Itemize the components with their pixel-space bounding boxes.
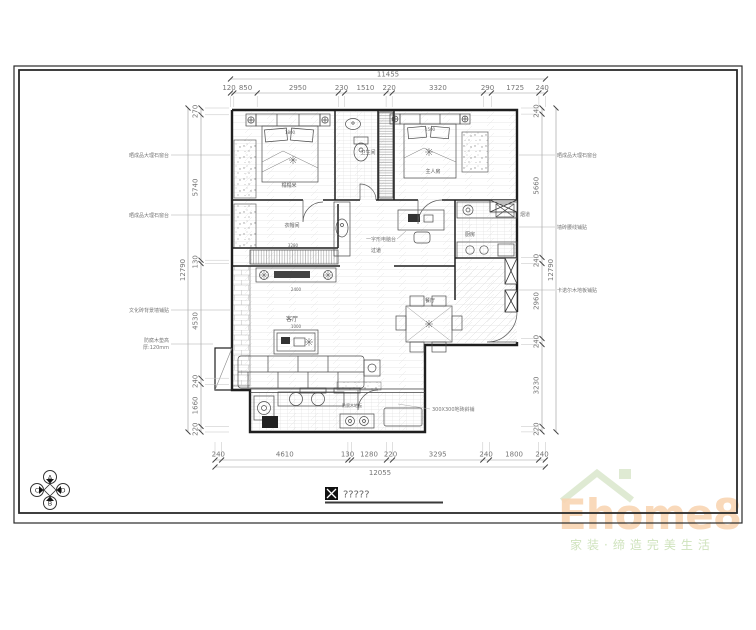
label-bedroom2: 主人房	[425, 168, 440, 175]
dim-left: 270 5740 130 4530 240 1660 220 12790	[179, 105, 229, 436]
logo-brand-text: Ehome8	[558, 490, 741, 539]
title-underline	[325, 502, 443, 504]
label-living: 客厅	[286, 315, 298, 323]
dim-right: 240 5660 240 2960 240 3230 220 12790	[521, 104, 556, 435]
dim-seg: 1280	[360, 451, 378, 459]
column-xbox	[505, 290, 517, 312]
label-hallway: 过道	[371, 247, 381, 254]
dim-seg: 240	[533, 104, 541, 117]
compass-a: A	[48, 474, 53, 482]
dim-seg: 130	[192, 255, 200, 268]
dim-seg: 240	[479, 451, 492, 459]
cloak-closet	[234, 204, 256, 248]
dim-coffee-table: 1000	[291, 324, 302, 329]
annotation-left: 防腐木垫高	[144, 337, 169, 344]
dim-tv-wall: 2400	[291, 287, 302, 292]
dim-seg: 220	[192, 423, 200, 436]
annotation-bottom: 300X300地砖斜铺	[432, 406, 475, 413]
logo-tagline: 家装·缔造完美生活	[570, 537, 715, 552]
dim-bed2: 1500	[425, 127, 436, 132]
dim-seg: 240	[192, 375, 200, 388]
annotation-left: 晒成品大理石窗台	[129, 152, 169, 159]
compass-b: B	[48, 500, 52, 508]
dim-seg: 4530	[192, 312, 200, 330]
dim-seg: 220	[384, 451, 397, 459]
label-bathroom: 卫生间	[360, 149, 375, 156]
dim-right-total: 12790	[547, 259, 555, 281]
dim-left-total: 12790	[179, 259, 187, 281]
dim-seg: 5740	[192, 179, 200, 197]
annotation-left: 文化砖背景墙铺贴	[129, 307, 169, 314]
dim-seg: 3320	[429, 84, 447, 92]
dim-seg: 5660	[533, 177, 541, 195]
dim-seg: 130	[341, 451, 354, 459]
dim-seg: 290	[481, 84, 494, 92]
compass-d: D	[60, 487, 65, 495]
dim-seg: 1725	[506, 84, 524, 92]
bay-window-sill-right	[462, 132, 488, 172]
label-bedroom1: 榻榻米	[281, 182, 296, 189]
title-text: ?????	[343, 490, 370, 501]
ehome8-logo: Ehome8 家装·缔造完美生活	[558, 469, 741, 552]
small-cabinet	[262, 416, 278, 428]
bay-window-sill-left1	[234, 140, 256, 198]
annotation-right: 晒成品大理石窗台	[557, 152, 597, 159]
dim-bottom: 240 4610 130 1280 220 3295 240 1800 240 …	[212, 442, 549, 477]
dim-seg: 3230	[533, 376, 541, 394]
dim-seg: 3295	[429, 451, 447, 459]
floorplan-drawing: Ehome8 家装·缔造完美生活	[0, 0, 756, 630]
dim-wardrobe: 3280	[288, 243, 299, 248]
dim-seg: 2960	[533, 292, 541, 310]
floorplan-page: Ehome8 家装·缔造完美生活	[0, 0, 756, 630]
dim-seg: 230	[335, 84, 348, 92]
dim-seg: 120	[222, 84, 235, 92]
title-block: ?????	[325, 487, 443, 504]
compass-c: C	[35, 487, 40, 495]
label-desk: 一字形电脑台	[366, 236, 396, 243]
label-cloakroom: 衣帽间	[284, 222, 299, 229]
dim-seg: 850	[239, 84, 252, 92]
dim-seg: 2950	[289, 84, 307, 92]
annotation-left: 厚:120mm	[143, 345, 169, 351]
dim-seg: 220	[533, 422, 541, 435]
label-dining: 餐厅	[425, 297, 435, 304]
dim-bed1: 1800	[285, 130, 296, 135]
dim-bottom-total: 12055	[369, 469, 391, 477]
dim-seg: 240	[533, 335, 541, 348]
column-xbox	[505, 258, 517, 284]
logo-chimney-icon	[619, 469, 631, 479]
label-balcony: 防腐木地板	[342, 402, 362, 408]
dim-seg: 240	[212, 451, 225, 459]
dim-seg: 270	[192, 105, 200, 118]
annotation-right: 墙砖腰线铺贴	[557, 224, 587, 231]
wardrobe-long	[250, 250, 338, 264]
dim-top: 11455 120 850 2950 230 1510 220 3320 290…	[222, 71, 549, 108]
dim-seg: 1660	[192, 396, 200, 414]
dim-seg: 240	[536, 84, 549, 92]
dim-seg: 4610	[276, 451, 294, 459]
elevation-marker: A B C D	[31, 471, 70, 510]
annotation-left: 晒成品大理石窗台	[129, 212, 169, 219]
label-kitchen: 厨房	[465, 231, 475, 238]
living-brick-wall	[232, 266, 250, 386]
dim-seg: 240	[535, 451, 548, 459]
dim-seg: 240	[533, 254, 541, 267]
dim-seg: 1800	[505, 451, 523, 459]
dim-top-total: 11455	[377, 71, 399, 79]
dim-seg: 1510	[356, 84, 374, 92]
annotation-flue: 烟道	[520, 211, 530, 218]
dim-seg: 220	[383, 84, 396, 92]
hall-closet	[379, 112, 393, 198]
annotation-right: 卡诺尔木地板铺贴	[557, 287, 597, 294]
